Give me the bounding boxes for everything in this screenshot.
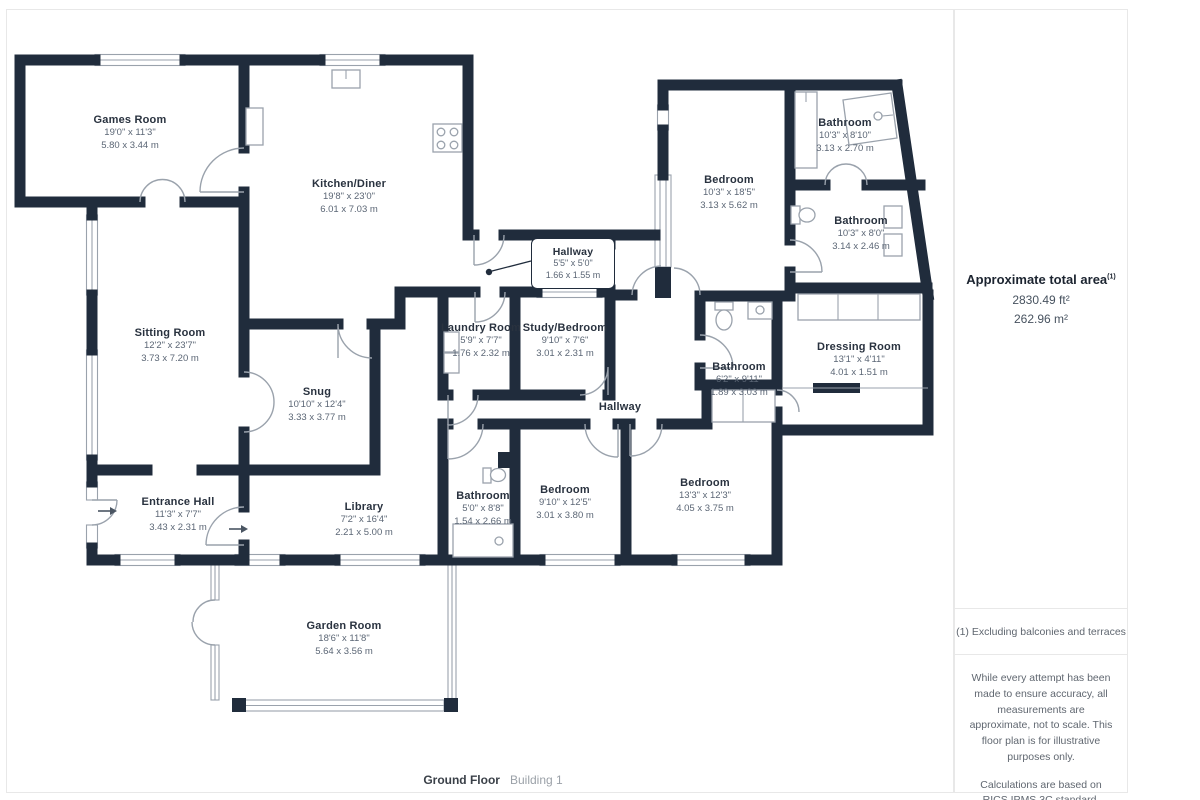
plan-area: Games Room 19'0" x 11'3" 5.80 x 3.44 m K… bbox=[0, 0, 954, 800]
inner-door-arrow-icon bbox=[229, 525, 248, 533]
plan-footer: Ground Floor Building 1 bbox=[423, 773, 562, 787]
walls bbox=[20, 60, 928, 560]
footnote-text: (1) Excluding balconies and terraces bbox=[956, 626, 1126, 638]
windows bbox=[87, 55, 751, 566]
hallway-callout-leader bbox=[486, 261, 531, 275]
floorplan-page: Games Room 19'0" x 11'3" 5.80 x 3.44 m K… bbox=[0, 0, 1200, 800]
info-sidebar: Approximate total area(1) 2830.49 ft² 26… bbox=[954, 0, 1200, 800]
total-area-title: Approximate total area(1) bbox=[955, 272, 1127, 287]
total-area-metric: 262.96 m² bbox=[955, 310, 1127, 329]
entrance-arrow-icon bbox=[98, 507, 117, 515]
floorplan-svg bbox=[0, 0, 954, 800]
floor-label: Ground Floor bbox=[423, 773, 500, 787]
disclaimer-text-2: Calculations are based on RICS IPMS 3C s… bbox=[968, 778, 1114, 800]
garden-room-glazing bbox=[211, 565, 458, 712]
building-label: Building 1 bbox=[510, 773, 563, 787]
fixtures bbox=[246, 70, 920, 557]
footnote-panel: (1) Excluding balconies and terraces bbox=[954, 608, 1128, 655]
room-label-hallway-callout: Hallway 5'5" x 5'0" 1.66 x 1.55 m bbox=[531, 238, 615, 289]
total-area-imperial: 2830.49 ft² bbox=[955, 291, 1127, 310]
total-area-block: Approximate total area(1) 2830.49 ft² 26… bbox=[955, 272, 1127, 329]
footnote-marker: (1) bbox=[1107, 274, 1116, 281]
disclaimer-text-1: While every attempt has been made to ens… bbox=[968, 671, 1114, 766]
total-area-panel: Approximate total area(1) 2830.49 ft² 26… bbox=[954, 9, 1128, 609]
disclaimer-panel: While every attempt has been made to ens… bbox=[954, 654, 1128, 793]
